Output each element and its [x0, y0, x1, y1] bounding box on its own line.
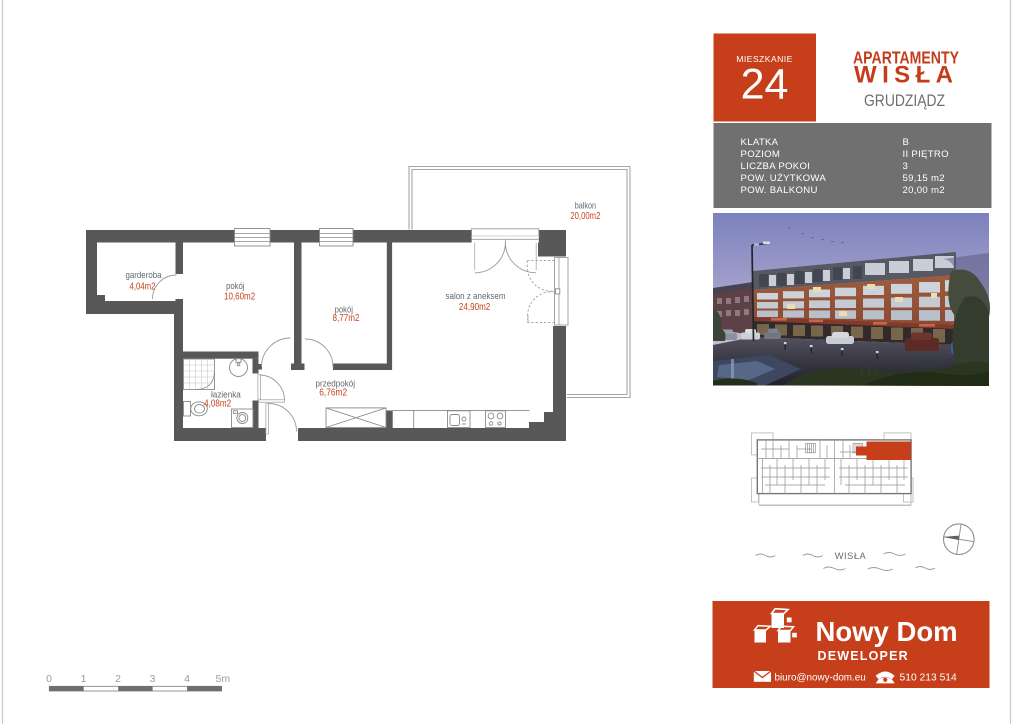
svg-text:4: 4 [184, 673, 190, 685]
svg-text:salon z aneksem: salon z aneksem [446, 291, 506, 301]
svg-text:4,08m2: 4,08m2 [204, 398, 231, 409]
svg-text:3: 3 [150, 673, 156, 685]
svg-text:2: 2 [115, 673, 121, 685]
svg-text:DEWELOPER: DEWELOPER [818, 649, 909, 663]
svg-text:LICZBA POKOI: LICZBA POKOI [741, 161, 811, 172]
svg-text:24,90m2: 24,90m2 [459, 302, 490, 313]
svg-text:3: 3 [903, 161, 909, 172]
svg-text:5m: 5m [216, 673, 231, 685]
svg-text:20,00 m2: 20,00 m2 [903, 185, 945, 196]
svg-text:KLATKA: KLATKA [741, 137, 779, 148]
svg-text:WISŁA: WISŁA [835, 551, 867, 561]
svg-text:balkon: balkon [575, 200, 596, 210]
svg-text:6,76m2: 6,76m2 [319, 387, 347, 398]
svg-text:garderoba: garderoba [126, 270, 163, 280]
svg-text:24: 24 [741, 61, 789, 109]
svg-text:II PIĘTRO: II PIĘTRO [903, 149, 949, 160]
svg-text:POW. BALKONU: POW. BALKONU [741, 185, 818, 196]
svg-text:20,00m2: 20,00m2 [570, 211, 600, 222]
svg-text:biuro@nowy-dom.eu: biuro@nowy-dom.eu [775, 673, 866, 684]
svg-text:WISŁA: WISŁA [854, 62, 953, 89]
svg-text:59,15 m2: 59,15 m2 [903, 173, 945, 184]
svg-text:GRUDZIĄDZ: GRUDZIĄDZ [864, 91, 945, 110]
svg-text:POZIOM: POZIOM [741, 149, 781, 160]
svg-text:10,60m2: 10,60m2 [224, 292, 255, 303]
svg-text:pokój: pokój [226, 281, 244, 291]
svg-text:B: B [903, 137, 910, 148]
svg-text:Nowy Dom: Nowy Dom [816, 616, 958, 647]
svg-text:510 213 514: 510 213 514 [900, 673, 958, 684]
svg-text:8,77m2: 8,77m2 [333, 313, 360, 324]
svg-text:0: 0 [46, 673, 52, 685]
svg-text:1: 1 [81, 673, 87, 685]
svg-text:4,04m2: 4,04m2 [130, 281, 156, 292]
svg-text:POW. UŻYTKOWA: POW. UŻYTKOWA [741, 173, 827, 184]
